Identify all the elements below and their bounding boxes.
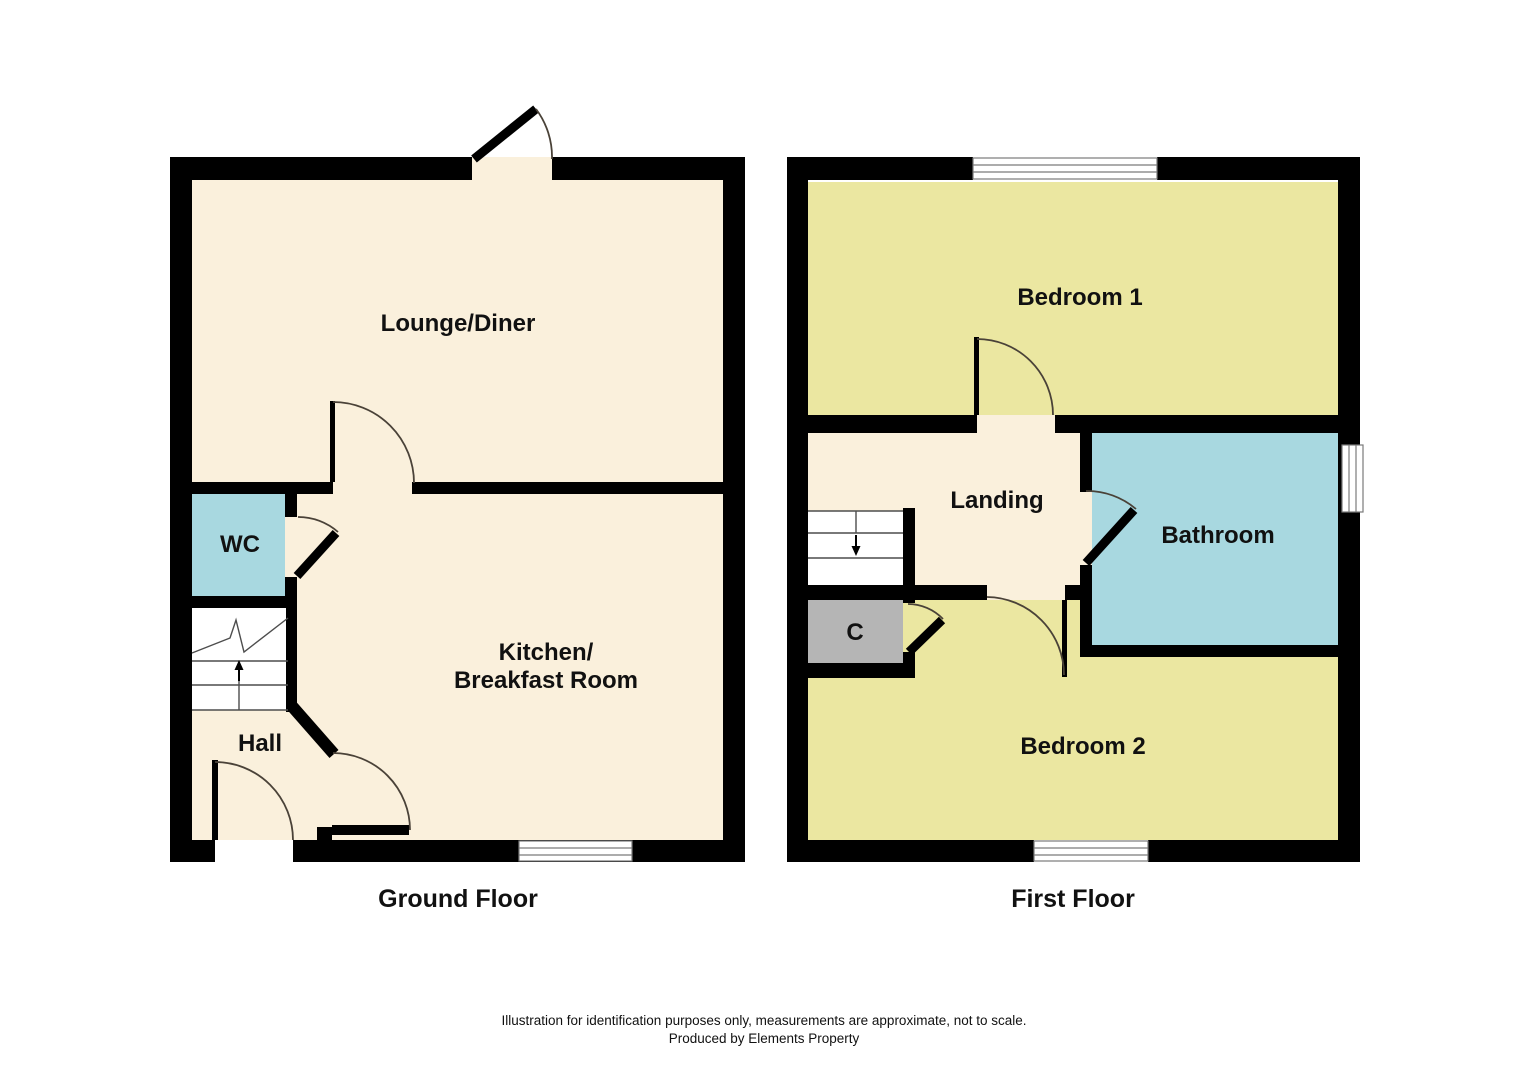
wall-exterior-left <box>787 157 808 862</box>
wall-exterior-top-left <box>170 157 472 180</box>
wall-exterior-left <box>170 157 192 862</box>
bathroom-label: Bathroom <box>1161 522 1274 549</box>
bedroom1-door-opening <box>977 415 1055 433</box>
wall-exterior-top-right <box>552 157 745 180</box>
wall-bathroom-left-top <box>1080 433 1092 492</box>
wall-bathroom-left-bottom <box>1080 565 1092 645</box>
lounge-diner-label: Lounge/Diner <box>381 310 536 337</box>
kitchen-label-line2: Breakfast Room <box>454 667 638 694</box>
wall-bedroom1-right <box>1055 415 1338 433</box>
wall-wc-right-bottom <box>285 577 297 598</box>
wall-wc-right-top <box>285 494 297 517</box>
wall-stairs-right-ground <box>286 608 297 712</box>
wall-cupboard-bottom <box>808 663 915 678</box>
wall-exterior-bottom-right <box>1148 840 1360 862</box>
kitchen-window <box>519 841 632 861</box>
bedroom2-window <box>1034 841 1148 861</box>
wall-lounge-left <box>192 482 333 494</box>
bathroom-window <box>1342 445 1363 512</box>
first-floor-title: First Floor <box>1011 885 1135 913</box>
entrance-door-arc <box>536 109 552 159</box>
bedroom1-door-leaf <box>974 337 979 415</box>
lounge-door-leaf <box>330 401 335 482</box>
bedroom1-label: Bedroom 1 <box>1017 284 1142 311</box>
wall-landing-bedroom2-left <box>808 585 987 600</box>
footer: Illustration for identification purposes… <box>501 1013 1026 1046</box>
hall-door-pivot-stub <box>317 827 332 840</box>
bedroom1-window <box>973 158 1157 179</box>
wall-exterior-bottom-left <box>787 840 1034 862</box>
wall-lounge-right <box>412 482 723 494</box>
front-door-leaf <box>212 760 218 840</box>
bedroom2-label: Bedroom 2 <box>1020 733 1145 760</box>
wall-exterior-top-right <box>1157 157 1360 180</box>
wall-exterior-bottom-left <box>170 840 215 862</box>
wall-landing-bedroom2-right <box>1065 585 1082 600</box>
wall-exterior-top-left <box>787 157 973 180</box>
stairs-area-ground <box>192 608 288 710</box>
wall-wc-bottom <box>192 596 297 608</box>
first-floor-plan: Bedroom 1 Landing Bathroom C Bedroom 2 F… <box>787 157 1363 913</box>
kitchen-label-line1: Kitchen/ <box>499 639 594 666</box>
wall-bathroom-bottom <box>1080 645 1338 657</box>
disclaimer-text: Illustration for identification purposes… <box>501 1013 1026 1028</box>
entrance-door-opening <box>472 157 552 182</box>
entrance-door-leaf <box>474 109 536 159</box>
hall-label: Hall <box>238 730 282 757</box>
kitchen-door-leaf <box>332 825 409 835</box>
producer-text: Produced by Elements Property <box>669 1031 860 1046</box>
floorplan-drawing: Lounge/Diner WC Kitchen/ Breakfast Room … <box>0 0 1528 1080</box>
wall-bedroom1-left <box>808 415 977 433</box>
landing-label: Landing <box>950 487 1043 514</box>
wall-stairs-right-first <box>903 508 915 603</box>
floorplan-page: Lounge/Diner WC Kitchen/ Breakfast Room … <box>0 0 1528 1080</box>
ground-floor-title: Ground Floor <box>378 885 538 913</box>
ground-floor-plan: Lounge/Diner WC Kitchen/ Breakfast Room … <box>170 109 745 913</box>
cupboard-label: C <box>846 619 863 646</box>
wall-exterior-right <box>723 157 745 862</box>
wc-label: WC <box>220 531 260 558</box>
